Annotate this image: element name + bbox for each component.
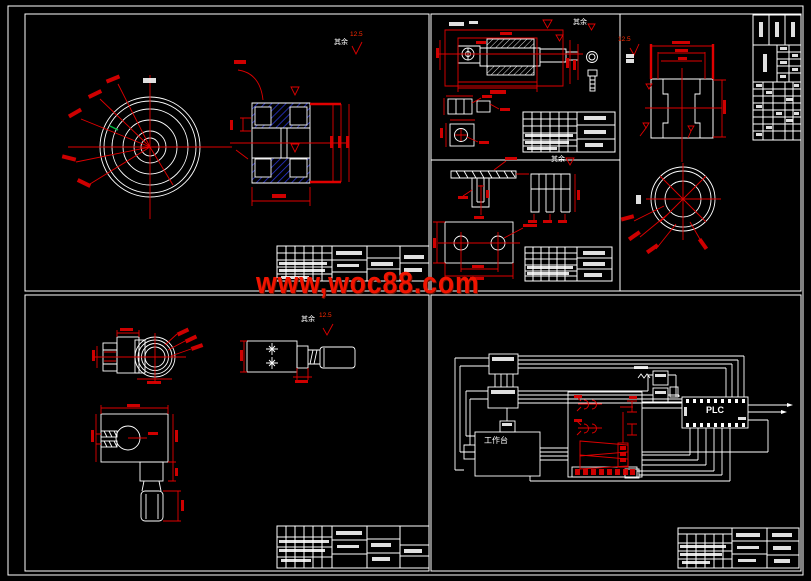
assembly-section-view [436, 20, 598, 94]
stepped-shaft-view [240, 341, 355, 383]
wire-arrow-icon [787, 403, 793, 407]
t-bracket-view [451, 157, 529, 219]
bushing-front-view [621, 163, 721, 254]
parts-list-table [753, 15, 801, 140]
dimension-label-smudges [458, 157, 517, 219]
title-block-bottom-right [678, 528, 799, 568]
title-block-parts [525, 247, 612, 281]
bolt-fastener [587, 52, 598, 92]
wiring-lines [455, 356, 787, 481]
plc-wiring-diagram [455, 354, 793, 481]
roughness-value: 12.5 [319, 313, 332, 320]
dimension-label-smudges [436, 21, 576, 94]
roughness-check-icon [323, 324, 333, 335]
fork-view [528, 174, 580, 223]
detail-views-left [440, 95, 510, 147]
crosshatch-bottom [487, 66, 534, 75]
bushing-section-view [626, 41, 726, 162]
surface-note-text: 其余 [573, 19, 587, 26]
surface-note-text: 其余 [551, 156, 565, 163]
cad-drawing-collage: 其余 12.5 其余 其余 12.5 其余 12.5 PLC 工作台 www,w… [0, 0, 811, 581]
plc-label: PLC [700, 406, 730, 415]
text-smudges [527, 251, 605, 277]
roughness-check-icon [352, 42, 362, 54]
wire-arrow-icon [781, 410, 787, 414]
roughness-triangle-icon [566, 158, 574, 165]
watermark: www,woc88.com [256, 265, 480, 301]
flange-front-view [62, 75, 232, 219]
title-block-assembly [523, 112, 615, 152]
pulley-section-view [230, 60, 349, 206]
crosshatch-top [487, 39, 534, 48]
dimension-label-smudges [240, 350, 308, 383]
clamp-bracket-view [91, 404, 184, 521]
dimension-label-smudges [91, 404, 184, 511]
crosshatch-left-wall [651, 79, 668, 138]
text-smudges [491, 357, 746, 426]
roughness-value: 12.5 [618, 37, 631, 44]
surface-note-text: 其余 [301, 316, 315, 323]
dimension-label-smudges [440, 95, 510, 144]
worktable-label: 工作台 [484, 437, 508, 445]
bushing-assembly-view [92, 328, 203, 384]
roughness-value: 12.5 [350, 32, 363, 39]
crosshatch-right-wall [695, 79, 713, 138]
red-components [574, 395, 637, 475]
dimension-label-smudges [626, 41, 726, 114]
title-block-bottom-left [277, 526, 429, 568]
surface-note-text: 其余 [334, 39, 348, 46]
